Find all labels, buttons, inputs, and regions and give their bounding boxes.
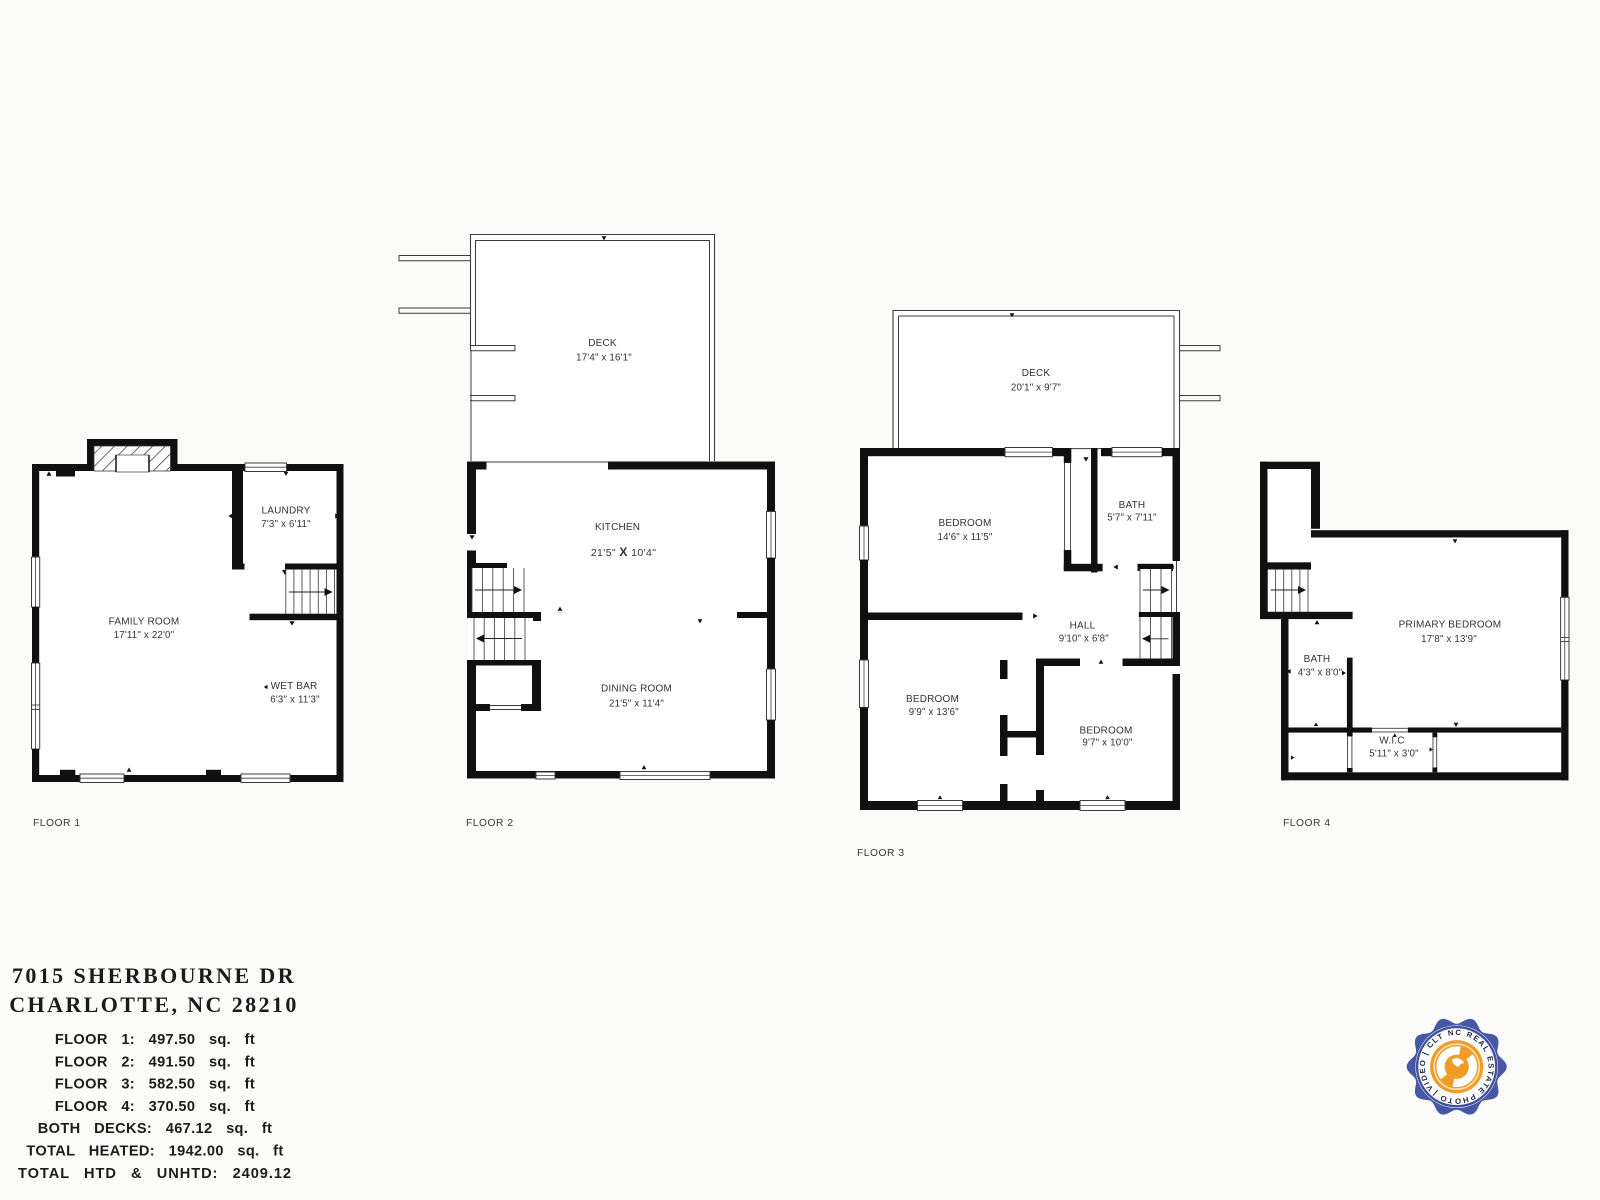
svg-text:DECK: DECK (1022, 368, 1051, 379)
svg-text:HALL: HALL (1070, 621, 1096, 632)
svg-text:9'9" x 13'6": 9'9" x 13'6" (909, 707, 960, 718)
svg-text:4'3" x 8'0": 4'3" x 8'0" (1298, 668, 1343, 679)
svg-text:FLOOR 2: 491.50 sq. ft: FLOOR 2: 491.50 sq. ft (55, 1054, 255, 1070)
svg-text:7'3" x 6'11": 7'3" x 6'11" (261, 519, 311, 530)
svg-text:BEDROOM: BEDROOM (938, 518, 991, 529)
svg-text:BATH: BATH (1119, 500, 1146, 511)
svg-text:9'10" x 6'8": 9'10" x 6'8" (1059, 634, 1110, 645)
svg-text:FAMILY ROOM: FAMILY ROOM (109, 617, 180, 628)
svg-text:CHARLOTTE, NC 28210: CHARLOTTE, NC 28210 (9, 992, 298, 1017)
svg-text:17'4" x 16'1": 17'4" x 16'1" (576, 353, 632, 364)
svg-text:WET BAR: WET BAR (271, 681, 318, 692)
svg-text:KITCHEN: KITCHEN (595, 522, 640, 533)
svg-text:5'11" x 3'0": 5'11" x 3'0" (1369, 749, 1419, 760)
svg-text:7015 SHERBOURNE DR: 7015 SHERBOURNE DR (12, 963, 296, 988)
svg-text:14'6" x 11'5": 14'6" x 11'5" (937, 532, 992, 543)
svg-text:FLOOR 1: FLOOR 1 (33, 818, 81, 829)
svg-text:17'8" x 13'9": 17'8" x 13'9" (1421, 634, 1477, 645)
svg-text:FLOOR 1: 497.50 sq. ft: FLOOR 1: 497.50 sq. ft (55, 1032, 255, 1048)
svg-text:BEDROOM: BEDROOM (1079, 726, 1132, 737)
svg-text:DINING ROOM: DINING ROOM (601, 684, 672, 695)
svg-text:21'5" X 10'4": 21'5" X 10'4" (591, 545, 657, 559)
svg-text:TOTAL HTD & UNHTD: 2409.12: TOTAL HTD & UNHTD: 2409.12 (18, 1166, 292, 1182)
svg-text:FLOOR 3: 582.50 sq. ft: FLOOR 3: 582.50 sq. ft (55, 1077, 255, 1093)
svg-text:FLOOR 4: 370.50 sq. ft: FLOOR 4: 370.50 sq. ft (55, 1099, 255, 1115)
svg-text:9'7" x 10'0": 9'7" x 10'0" (1082, 738, 1133, 749)
svg-text:W.I.C: W.I.C (1379, 736, 1404, 747)
svg-text:BOTH DECKS: 467.12 sq. ft: BOTH DECKS: 467.12 sq. ft (38, 1121, 273, 1137)
svg-text:LAUNDRY: LAUNDRY (261, 506, 310, 517)
svg-text:20'1" x 9'7": 20'1" x 9'7" (1011, 383, 1062, 394)
svg-text:TOTAL HEATED: 1942.00 sq. ft: TOTAL HEATED: 1942.00 sq. ft (26, 1144, 283, 1160)
svg-text:5'7" x 7'11": 5'7" x 7'11" (1107, 513, 1157, 524)
svg-text:BATH: BATH (1304, 654, 1331, 665)
svg-text:DECK: DECK (588, 338, 617, 349)
svg-text:FLOOR 4: FLOOR 4 (1283, 818, 1331, 829)
svg-text:6'3" x 11'3": 6'3" x 11'3" (270, 695, 320, 706)
svg-text:FLOOR 2: FLOOR 2 (466, 818, 514, 829)
svg-text:PRIMARY BEDROOM: PRIMARY BEDROOM (1399, 620, 1502, 631)
svg-text:17'11" x 22'0": 17'11" x 22'0" (114, 630, 175, 641)
svg-text:BEDROOM: BEDROOM (906, 694, 959, 705)
svg-text:FLOOR 3: FLOOR 3 (857, 848, 905, 859)
svg-text:21'5" x 11'4": 21'5" x 11'4" (609, 699, 664, 710)
